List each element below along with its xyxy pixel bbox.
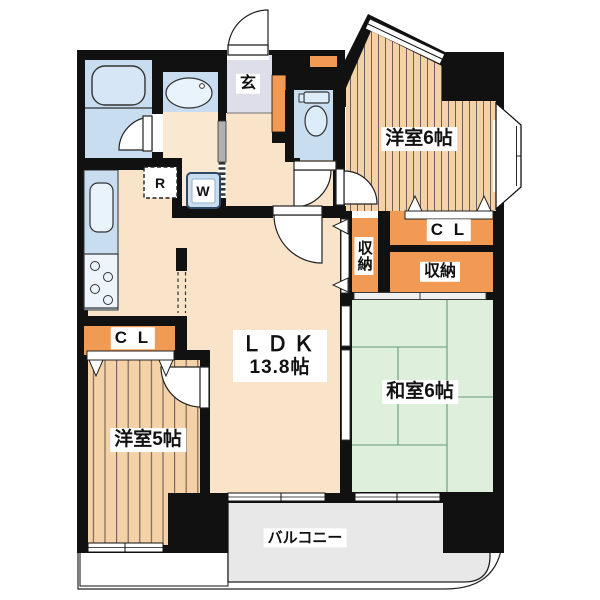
lower-ledge [80,552,228,586]
western5-window [88,543,163,552]
faucet [200,84,205,89]
label-closet-west6: C L [427,219,471,241]
overhead-cabinet [310,56,337,67]
storage-wide-sliding [354,292,486,300]
label-balcony: バルコニー [264,528,347,547]
label-ldk-size: 13.8帖 [241,357,319,379]
label-ldk-name: ＬＤＫ [241,333,319,357]
label-western6: 洋室6帖 [381,127,457,151]
washbasin [166,78,212,108]
floor-plan-graphic [0,0,600,600]
kitchen-counter [84,170,118,310]
ldk-balcony-window [228,493,325,501]
label-entrance: 玄 [236,74,260,94]
floor-plan: 玄 洋室6帖 C L 収納 収納 ＬＤＫ 13.8帖 和室6帖 C L 洋室5帖… [0,0,600,600]
shoe-cabinet [272,75,286,132]
washroom-floor [162,112,218,160]
entrance-door [227,10,269,60]
bathtub [92,66,145,105]
kitchen-sink [90,183,113,232]
label-storage-tall: 収納 [354,237,373,275]
label-washing-machine: W [196,183,209,199]
label-closet-west5: C L [111,327,155,349]
label-refrigerator: R [155,175,165,191]
japanese6-balcony-window [355,493,440,501]
label-japanese6: 和室6帖 [382,380,458,404]
bay-window [493,103,521,209]
japanese6-sliding-doors [342,306,351,440]
washroom-sliding-door [218,121,226,162]
label-ldk: ＬＤＫ 13.8帖 [233,330,327,382]
label-storage-wide: 収納 [420,262,460,282]
label-western5: 洋室5帖 [110,428,186,452]
